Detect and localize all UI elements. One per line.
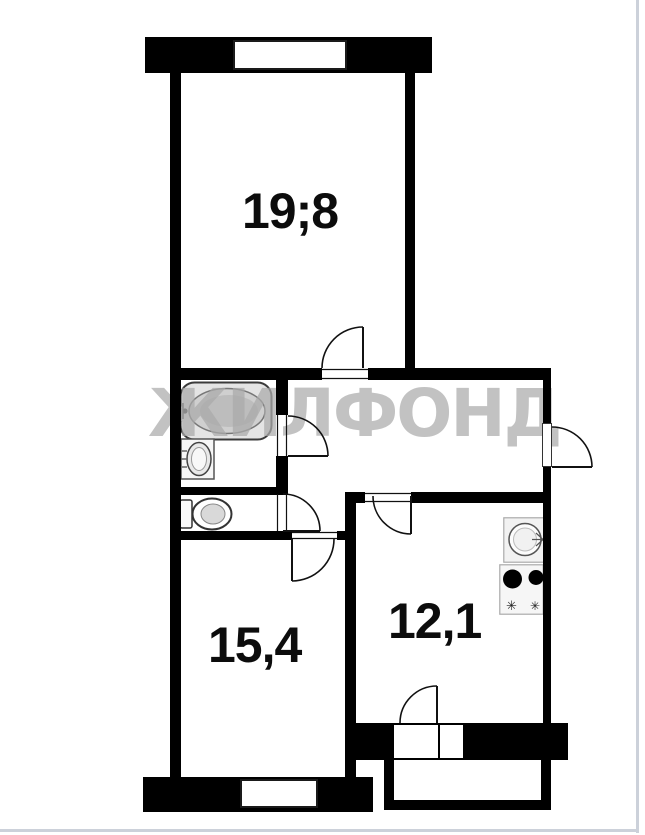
door-wc (278, 494, 321, 531)
page-edge-bottom (0, 829, 639, 832)
door-kitchen (365, 494, 411, 535)
door-living (322, 327, 368, 379)
kitchen-area-label: 12,1 (388, 596, 481, 646)
door-entrance (552, 427, 592, 467)
door-bedroom (292, 533, 337, 582)
bedroom-area-label: 15,4 (208, 620, 301, 670)
door-bathroom (278, 415, 329, 456)
doors-layer (0, 0, 645, 835)
floorplan: ✳ ✳ ЖИЛФОНД (0, 0, 645, 835)
living-area-label: 19;8 (242, 186, 338, 236)
door-balcony (400, 686, 437, 723)
page-edge-right (636, 0, 639, 833)
